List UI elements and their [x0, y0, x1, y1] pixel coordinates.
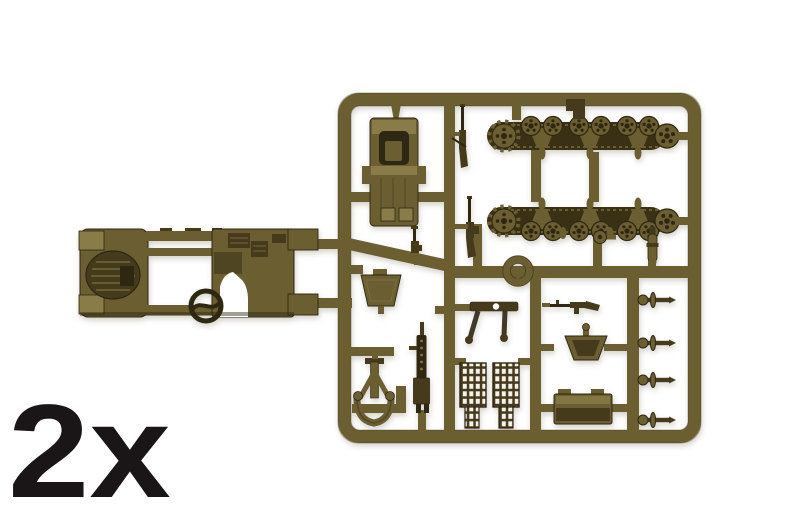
- sprue: [79, 93, 701, 443]
- axle-part-2: [638, 336, 676, 351]
- quantity-label: 2x: [8, 386, 171, 519]
- track-link-section-right: [493, 363, 519, 428]
- axle-part-4: [638, 413, 676, 428]
- track-link-section-left: [460, 363, 486, 428]
- product-photo: 2x: [0, 0, 800, 530]
- axle-part-3: [638, 373, 676, 388]
- windshield-bracket-part: [465, 302, 518, 344]
- windscreen-part: [361, 269, 401, 314]
- seat-part: [565, 324, 607, 361]
- cab-body-part: [362, 118, 426, 226]
- rifle-part-3: [542, 300, 600, 314]
- small-bracket-part: [566, 99, 585, 119]
- track-assembly-bottom: [487, 198, 689, 241]
- stowage-box-part: [554, 389, 612, 424]
- machine-gun-part: [409, 322, 430, 413]
- track-assembly-top: [487, 117, 689, 160]
- steering-wheel-part: [191, 291, 221, 321]
- axle-part-1: [638, 293, 676, 308]
